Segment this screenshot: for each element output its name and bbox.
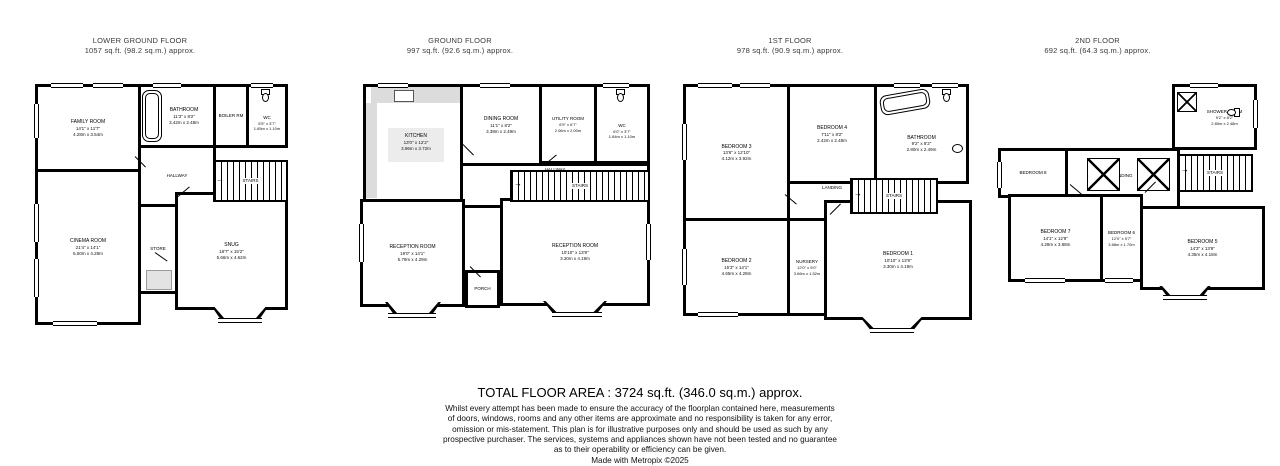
room-reception-room-2: RECEPTION ROOM 10'10" x 13'9" 3.30m x 4.… <box>500 198 650 306</box>
stairs-label: STAIRS <box>1205 170 1225 177</box>
window-mark <box>894 83 920 88</box>
window-mark <box>1190 83 1218 88</box>
window-mark <box>480 83 510 88</box>
room-label: FAMILY ROOM 14'1" x 11'7" 4.28m x 3.54m <box>71 118 105 138</box>
plan-first-floor: BEDROOM 3 13'6" x 12'10" 4.12m x 3.92m B… <box>680 84 975 334</box>
metropix-credit: Made with Metropix ©2025 <box>0 456 1280 465</box>
window-mark <box>870 328 914 333</box>
floorplan-canvas: LOWER GROUND FLOOR 1057 sq.ft. (98.2 sq.… <box>0 0 1280 466</box>
room-cinema-room: CINEMA ROOM 21'4" x 14'1" 6.50m x 4.28m <box>35 169 141 325</box>
floor-title-lower-ground: LOWER GROUND FLOOR 1057 sq.ft. (98.2 sq.… <box>40 36 240 56</box>
room-boiler-room: BOILER RM <box>213 84 249 148</box>
window-mark <box>997 162 1002 188</box>
skylight-icon <box>1087 158 1120 191</box>
disclaimer-line: as to their operability or efficiency ca… <box>0 445 1280 455</box>
disclaimer-line: omission or mis-statement. This plan is … <box>0 425 1280 435</box>
room-label: BEDROOM 2 15'3" x 14'1" 4.65m x 4.28m <box>721 257 751 277</box>
room-bedroom-2: BEDROOM 2 15'3" x 14'1" 4.65m x 4.28m <box>683 218 790 316</box>
room-label: LANDING <box>822 184 842 191</box>
room-label: BEDROOM 6 12'0" x 5'7" 3.68m x 1.70m <box>1108 229 1135 247</box>
window-mark <box>552 312 602 317</box>
window-mark <box>740 83 770 88</box>
window-mark <box>218 318 262 323</box>
plan-lower-ground-floor: FAMILY ROOM 14'1" x 11'7" 4.28m x 3.54m … <box>35 84 291 330</box>
window-mark <box>603 83 629 88</box>
stairs-up-arrow-icon: → <box>514 180 522 188</box>
room-porch: PORCH <box>465 270 500 308</box>
toilet-icon <box>942 89 951 102</box>
shower-tray-icon <box>1177 92 1197 112</box>
room-label: SNUG 18'7" x 15'2" 5.66m x 4.62m <box>217 241 247 261</box>
bathtub-icon <box>142 90 162 142</box>
floor-title-first: 1ST FLOOR 978 sq.ft. (90.9 sq.m.) approx… <box>700 36 880 56</box>
disclaimer-line: of doors, windows, rooms and any other i… <box>0 414 1280 424</box>
room-label: PORCH <box>474 285 490 292</box>
toilet-icon <box>261 89 270 102</box>
floor-title-text: 1ST FLOOR <box>700 36 880 46</box>
stairs-up-arrow-icon: → <box>1181 166 1189 174</box>
plan-second-floor: SHOWER ROOM 9'2" x 8'2" 2.80m x 2.48m BE… <box>995 84 1280 306</box>
room-label: BEDROOM 7 14'1" x 12'9" 4.28m x 3.88m <box>1040 228 1070 248</box>
room-label: RECEPTION ROOM 10'10" x 13'9" 3.30m x 4.… <box>552 242 598 262</box>
window-mark <box>251 83 273 88</box>
window-mark <box>34 259 39 297</box>
room-bedroom-1: BEDROOM 1 10'10" x 13'9" 3.30m x 4.19m <box>824 200 972 320</box>
room-label: WC 6'0" x 3'7" 1.84m x 1.10m <box>609 109 635 140</box>
room-utility-room: UTILITY ROOM 6'9" x 6'7" 2.06m x 2.00m <box>539 84 597 164</box>
room-reception-room-1: RECEPTION ROOM 19'0" x 14'1" 5.79m x 4.2… <box>360 199 465 307</box>
window-mark <box>378 83 408 88</box>
window-mark <box>388 313 436 318</box>
window-mark <box>1105 278 1133 283</box>
plan-ground-floor: KITCHEN 13'0" x 12'2" 3.96m x 3.72m DINI… <box>360 84 660 334</box>
window-mark <box>53 321 97 326</box>
room-label: RECEPTION ROOM 19'0" x 14'1" 5.79m x 4.2… <box>389 243 435 263</box>
disclaimer-line: Whilst every attempt has been made to en… <box>0 404 1280 414</box>
stairs-first: STAIRS <box>850 178 938 214</box>
room-bedroom-8: BEDROOM 8 <box>998 148 1068 198</box>
window-mark <box>698 83 732 88</box>
room-label: BEDROOM 1 10'10" x 13'9" 3.30m x 4.19m <box>883 250 913 270</box>
disclaimer: Whilst every attempt has been made to en… <box>0 404 1280 455</box>
floor-title-ground: GROUND FLOOR 997 sq.ft. (92.6 sq.m.) app… <box>370 36 550 56</box>
room-label: DINING ROOM 11'1" x 8'2" 3.38m x 2.49m <box>484 115 518 135</box>
room-label: STORE <box>150 245 165 252</box>
floor-area-text: 1057 sq.ft. (98.2 sq.m.) approx. <box>40 46 240 56</box>
room-bedroom-3: BEDROOM 3 13'6" x 12'10" 4.12m x 3.92m <box>683 84 790 221</box>
window-mark <box>1253 100 1258 128</box>
room-label: WC 5'5" x 3'7" 1.65m x 1.10m <box>254 101 280 132</box>
room-label: NURSERY 12'0" x 5'0" 3.66m x 1.52m <box>794 258 820 276</box>
kitchen-counter <box>371 87 460 103</box>
sink-icon <box>952 144 963 153</box>
total-floor-area: TOTAL FLOOR AREA : 3724 sq.ft. (346.0 sq… <box>0 385 1280 400</box>
room-label: BOILER RM <box>219 112 244 119</box>
stairs-label: STAIRS <box>570 183 590 190</box>
room-bedroom-5: BEDROOM 5 14'3" x 13'9" 4.35m x 4.18m <box>1140 206 1265 290</box>
footer: TOTAL FLOOR AREA : 3724 sq.ft. (346.0 sq… <box>0 385 1280 465</box>
floor-title-text: 2ND FLOOR <box>1005 36 1190 46</box>
room-label: BEDROOM 4 7'11" x 8'2" 2.42m x 2.48m <box>817 124 847 144</box>
skylight-icon <box>1137 158 1170 191</box>
window-mark <box>51 83 83 88</box>
window-mark <box>1025 278 1065 283</box>
floor-area-text: 978 sq.ft. (90.9 sq.m.) approx. <box>700 46 880 56</box>
window-mark <box>682 124 687 160</box>
room-bedroom-4: BEDROOM 4 7'11" x 8'2" 2.42m x 2.48m <box>787 84 877 184</box>
floor-title-text: GROUND FLOOR <box>370 36 550 46</box>
floor-title-second: 2ND FLOOR 692 sq.ft. (64.3 sq.m.) approx… <box>1005 36 1190 56</box>
stairs-up-arrow-icon: → <box>216 176 224 184</box>
toilet-icon <box>1227 108 1240 117</box>
stairs-up-arrow-icon: → <box>854 190 862 198</box>
floor-area-text: 692 sq.ft. (64.3 sq.m.) approx. <box>1005 46 1190 56</box>
room-bedroom-6: BEDROOM 6 12'0" x 5'7" 3.68m x 1.70m <box>1100 194 1143 282</box>
room-snug: SNUG 18'7" x 15'2" 5.66m x 4.62m <box>175 192 288 310</box>
disclaimer-line: prospective purchaser. The services, sys… <box>0 435 1280 445</box>
room-nursery: NURSERY 12'0" x 5'0" 3.66m x 1.52m <box>787 218 827 316</box>
floor-area-text: 997 sq.ft. (92.6 sq.m.) approx. <box>370 46 550 56</box>
window-mark <box>698 312 738 317</box>
window-mark <box>34 104 39 138</box>
window-mark <box>34 204 39 242</box>
stairs-label: STAIRS <box>884 193 904 200</box>
room-label: BATHROOM 9'2" x 8'2" 2.80m x 2.49m <box>907 115 937 154</box>
window-mark <box>153 83 181 88</box>
window-mark <box>682 249 687 285</box>
kitchen-counter <box>366 103 377 198</box>
room-family-room: FAMILY ROOM 14'1" x 11'7" 4.28m x 3.54m <box>35 84 141 172</box>
stairs-ground: STAIRS <box>510 170 650 202</box>
room-label: BEDROOM 8 <box>1019 169 1046 176</box>
window-mark <box>1163 295 1207 300</box>
room-bedroom-7: BEDROOM 7 14'1" x 12'9" 4.28m x 3.88m <box>1008 194 1103 282</box>
room-label: HALLWAY <box>167 172 188 179</box>
window-mark <box>646 224 651 260</box>
window-mark <box>93 83 123 88</box>
room-label: UTILITY ROOM 6'9" x 6'7" 2.06m x 2.00m <box>552 115 584 133</box>
window-mark <box>359 224 364 262</box>
window-mark <box>932 83 958 88</box>
kitchen-sink-icon <box>394 90 414 102</box>
room-label: BEDROOM 3 13'6" x 12'10" 4.12m x 3.92m <box>721 143 751 163</box>
toilet-icon <box>616 89 625 102</box>
floor-title-text: LOWER GROUND FLOOR <box>40 36 240 46</box>
store-appliance-icon <box>146 270 172 290</box>
stairs-label: STAIRS <box>241 178 261 185</box>
room-label: KITCHEN 13'0" x 12'2" 3.96m x 3.72m <box>390 132 442 152</box>
stairs-lower-ground: STAIRS <box>213 160 288 202</box>
room-label: CINEMA ROOM 21'4" x 14'1" 6.50m x 4.28m <box>70 237 106 257</box>
room-label: BEDROOM 5 14'3" x 13'9" 4.35m x 4.18m <box>1187 238 1217 258</box>
